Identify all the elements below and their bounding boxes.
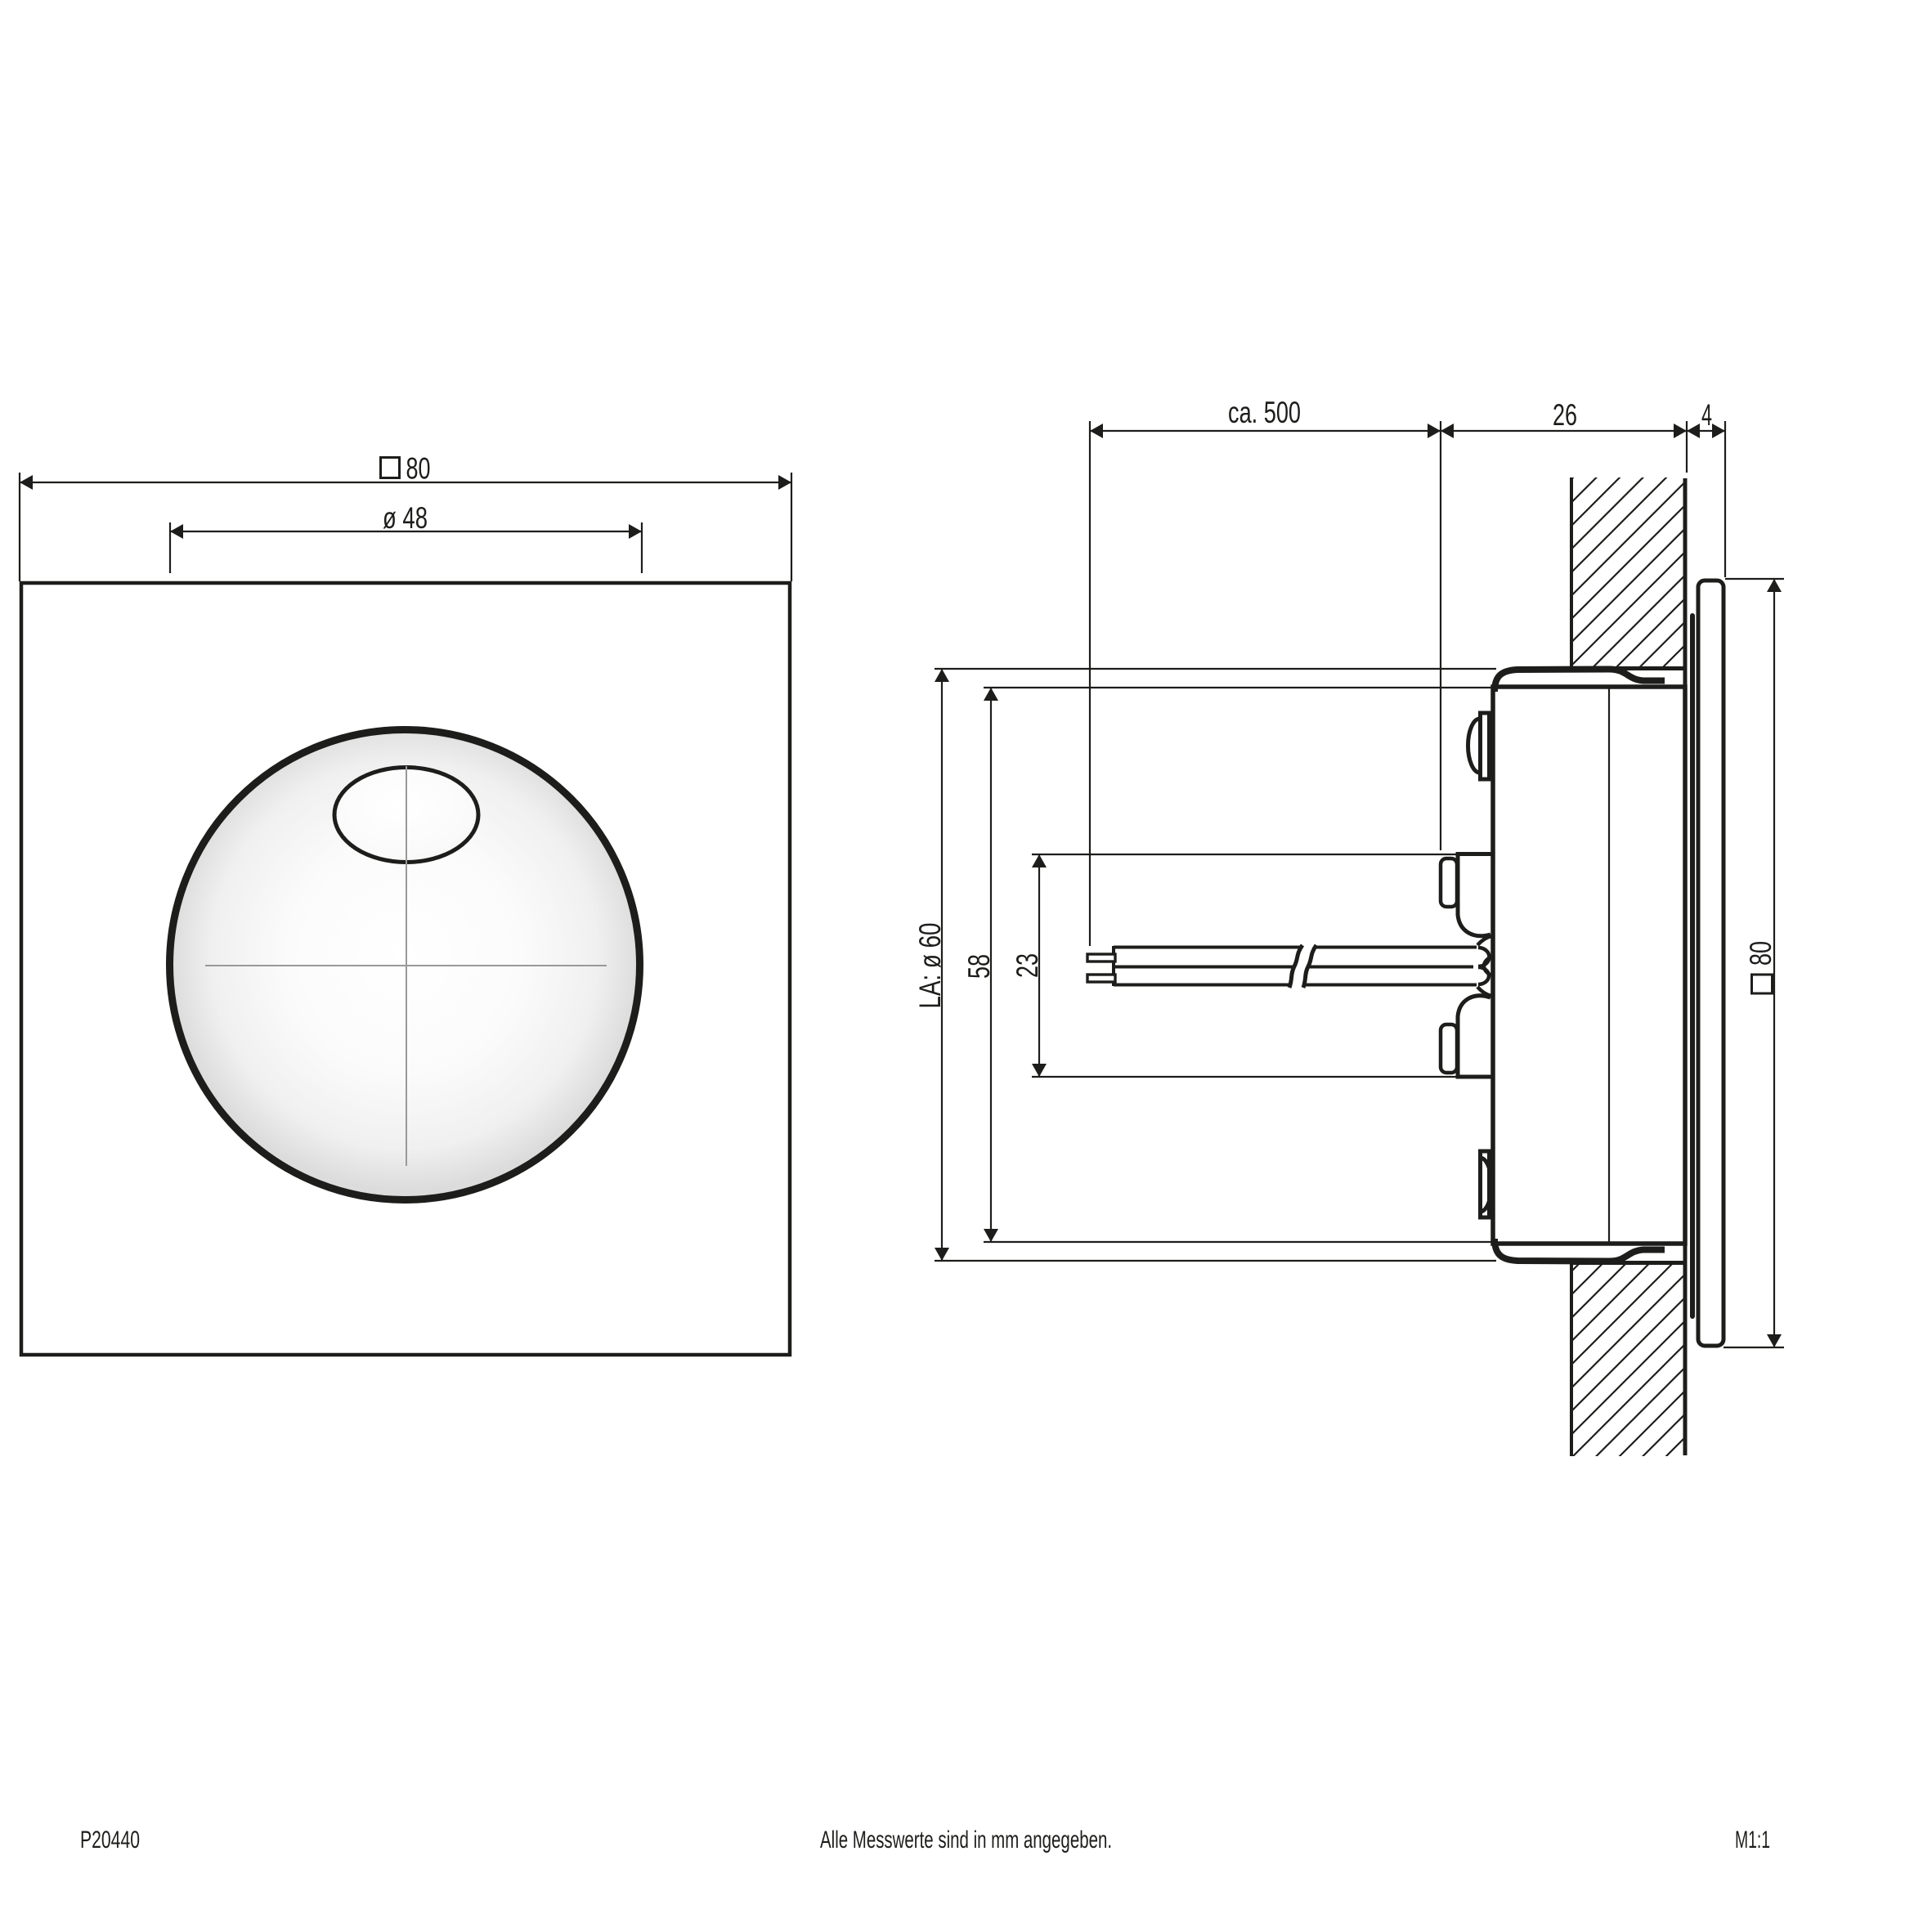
svg-text:ca. 500: ca. 500 <box>1228 396 1301 429</box>
svg-text:80: 80 <box>1744 941 1777 966</box>
svg-text:Alle Messwerte sind in mm ange: Alle Messwerte sind in mm angegeben. <box>820 1827 1112 1854</box>
svg-text:23: 23 <box>1011 953 1044 978</box>
svg-text:LA: ø 60: LA: ø 60 <box>913 923 947 1009</box>
svg-text:4: 4 <box>1701 398 1712 432</box>
svg-text:58: 58 <box>962 954 996 979</box>
svg-text:80: 80 <box>406 452 431 486</box>
svg-text:M1:1: M1:1 <box>1735 1827 1770 1854</box>
svg-text:P20440: P20440 <box>80 1827 140 1854</box>
svg-text:ø 48: ø 48 <box>383 501 428 535</box>
svg-text:26: 26 <box>1553 398 1577 432</box>
